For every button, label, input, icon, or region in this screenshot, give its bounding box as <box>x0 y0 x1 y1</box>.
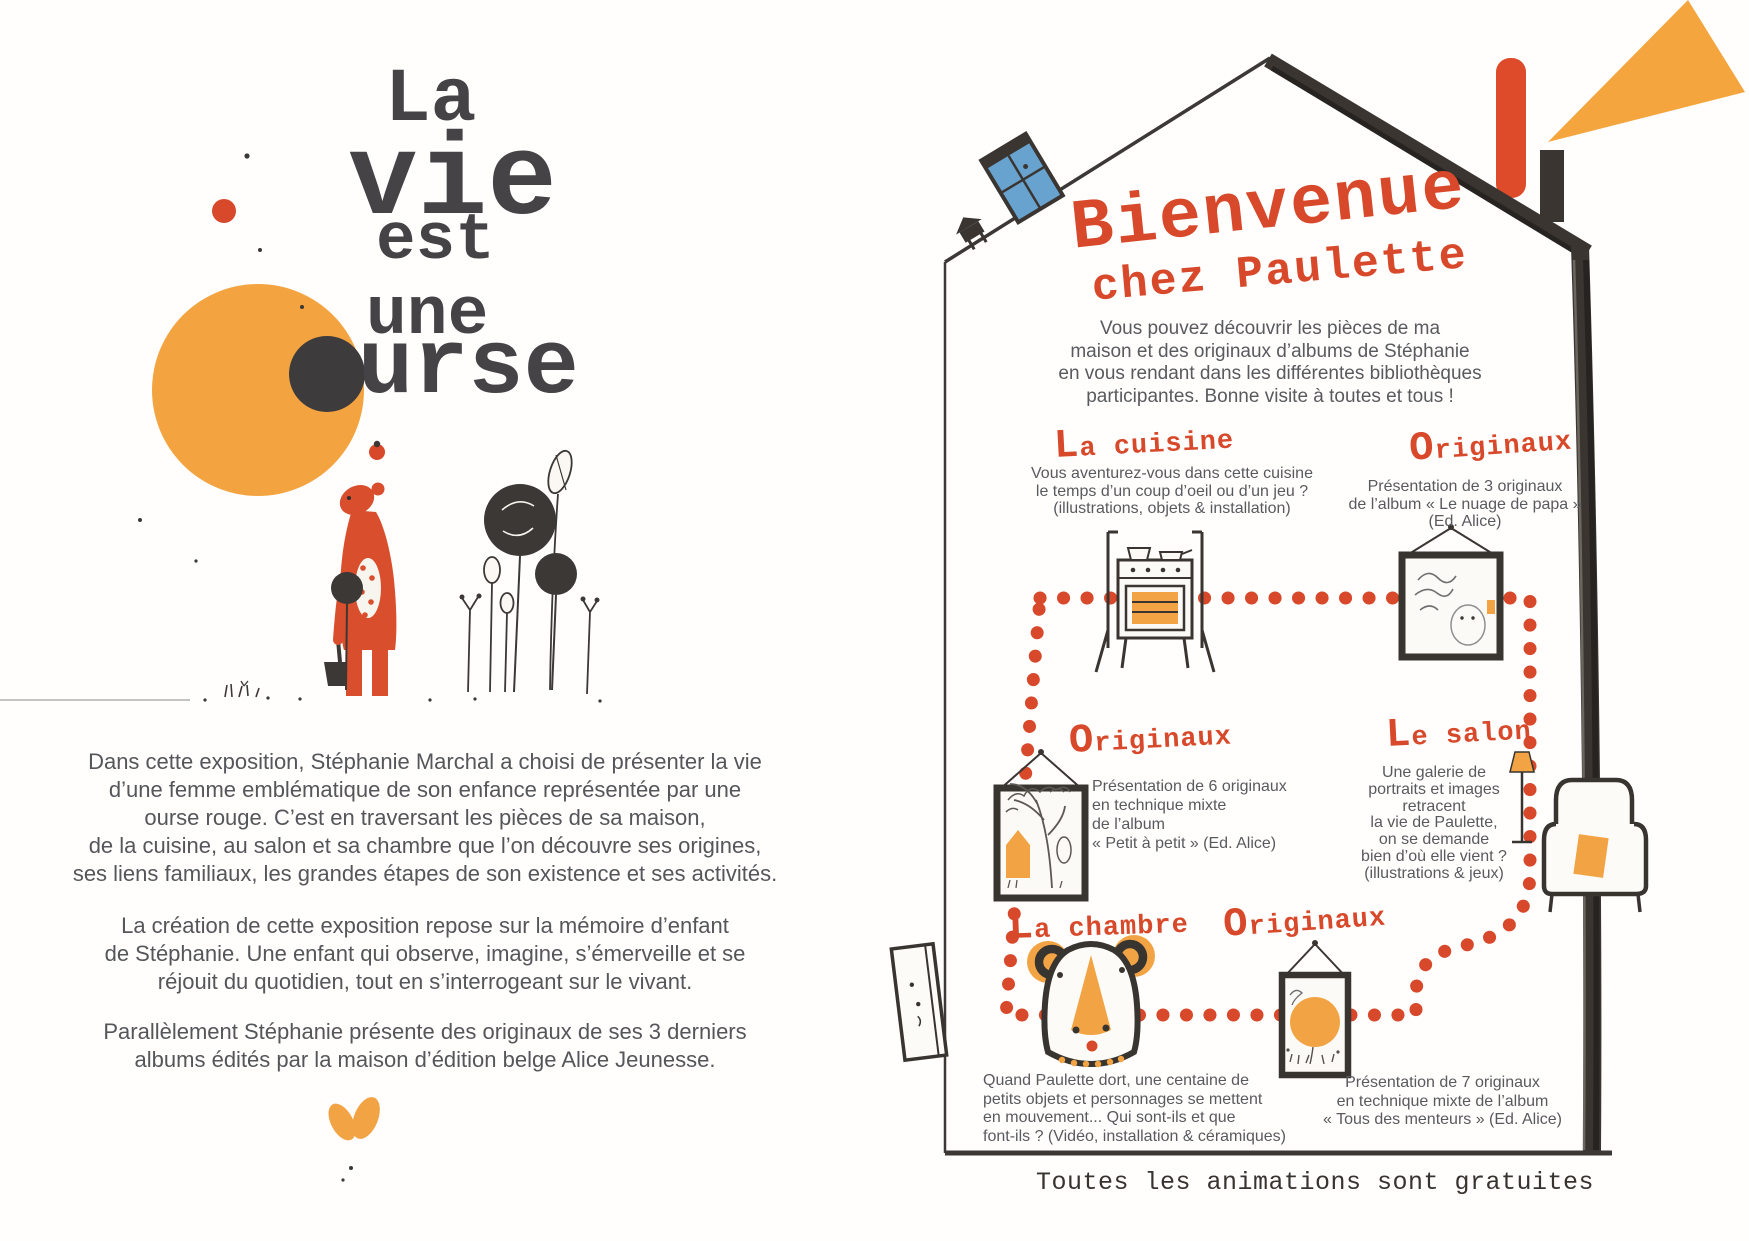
section-originaux-menteurs-body: Présentation de 7 originaux en technique… <box>1315 1074 1570 1130</box>
title-ourse-suffix: urse <box>358 322 579 414</box>
armchair-illustration <box>1544 780 1646 912</box>
orange-paper <box>1573 834 1608 878</box>
section-originaux-nuage-body: Présentation de 3 originaux de l’album «… <box>1340 478 1590 531</box>
chimney-smoke <box>1548 0 1745 142</box>
frame-petit-illustration <box>997 749 1085 898</box>
exhibition-description-paragraph-1: Dans cette exposition, Stéphanie Marchal… <box>40 748 810 888</box>
paulette-face-illustration <box>1027 935 1155 1067</box>
exhibition-flyer: La vie est une urse Dans cette expositio… <box>0 0 1749 1241</box>
section-salon-title: Le salon <box>1385 708 1533 756</box>
bear-eye <box>347 496 351 500</box>
section-chambre-title: La chambre <box>1008 902 1189 949</box>
red-mouth <box>1087 1041 1098 1052</box>
section-originaux-petit-body: Présentation de 6 originaux en technique… <box>1092 777 1332 853</box>
orange-moon-icon <box>1290 997 1340 1047</box>
section-originaux-petit-title: Originaux <box>1068 713 1233 762</box>
free-animations-footer: Toutes les animations sont gratuites <box>1005 1168 1625 1197</box>
dark-chimney <box>1540 150 1564 222</box>
title-est: est <box>376 208 495 274</box>
section-chambre-body: Quand Paulette dort, une centaine de pet… <box>983 1072 1313 1146</box>
frame-nuage-illustration <box>1402 524 1500 657</box>
attic-window-icon <box>981 134 1063 222</box>
exhibition-description-paragraph-3: Parallèlement Stéphanie présente des ori… <box>40 1018 810 1074</box>
heart-sprout-icon <box>323 1093 385 1181</box>
frame-menteurs-illustration <box>1282 940 1348 1075</box>
red-chimney <box>1496 58 1526 198</box>
red-dot <box>212 199 236 223</box>
section-cuisine-body: Vous aventurez-vous dans cette cuisine l… <box>1012 465 1332 518</box>
title-decoration <box>138 153 365 562</box>
roof-vent-icon <box>950 210 993 254</box>
dark-o-circle <box>289 336 365 412</box>
door-book-illustration <box>891 944 946 1060</box>
section-salon-body: Une galerie de portraits et images retra… <box>1330 765 1538 883</box>
exhibition-description-paragraph-2: La création de cette exposition repose s… <box>40 912 810 996</box>
welcome-intro-text: Vous pouvez découvrir les pièces de ma m… <box>1020 318 1520 408</box>
red-bear-illustration <box>324 441 396 696</box>
